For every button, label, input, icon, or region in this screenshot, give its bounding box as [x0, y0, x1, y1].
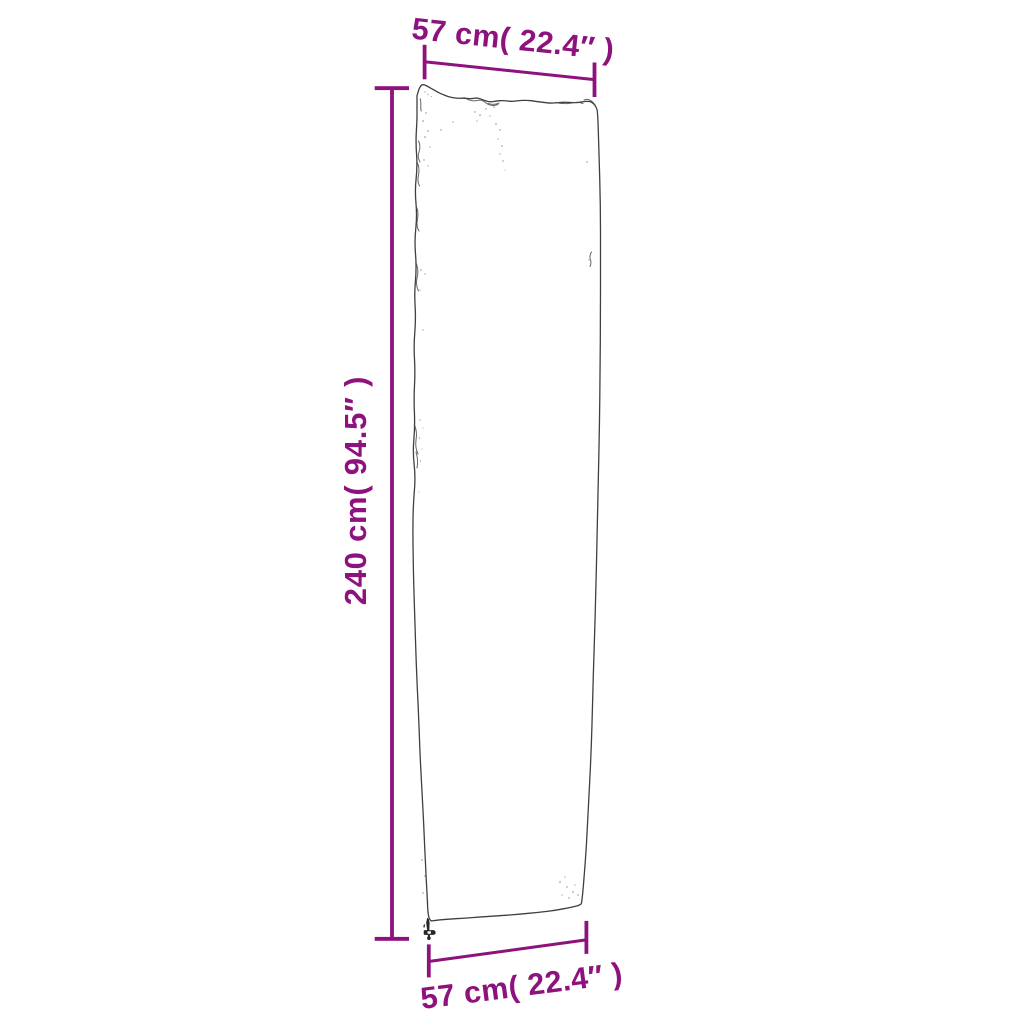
svg-text:240 cm( 94.5″ ): 240 cm( 94.5″ )	[338, 376, 373, 605]
